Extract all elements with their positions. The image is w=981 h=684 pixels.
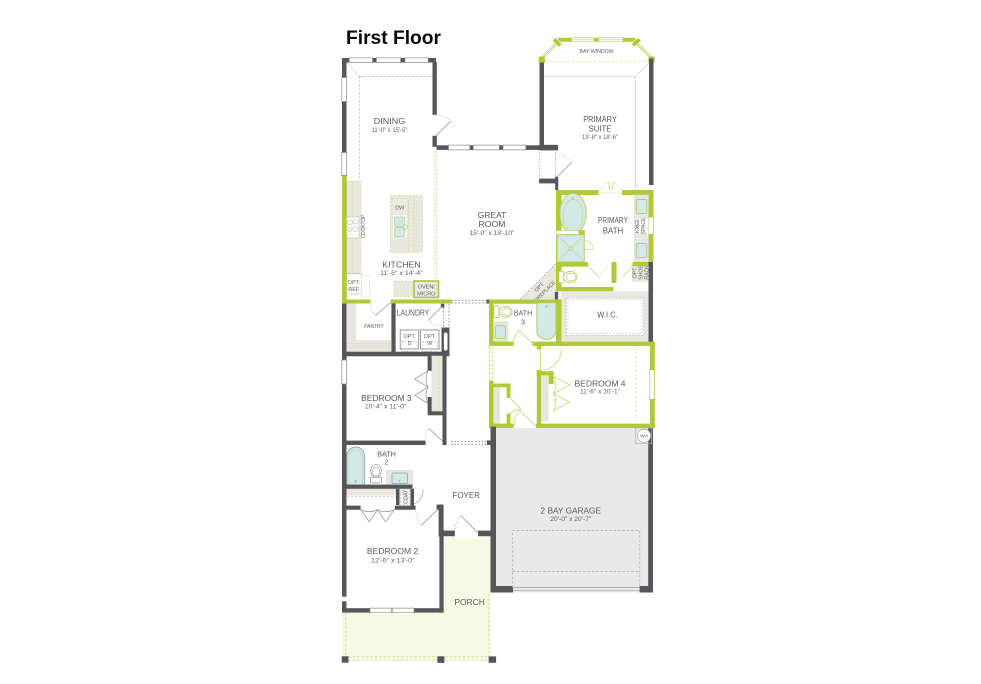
svg-text:W.I.C.: W.I.C. bbox=[597, 311, 618, 320]
svg-text:BAY WINDOW: BAY WINDOW bbox=[580, 49, 615, 55]
svg-text:PORCH: PORCH bbox=[454, 598, 484, 607]
svg-text:15'-0" x 18'-10": 15'-0" x 18'-10" bbox=[470, 230, 515, 237]
svg-text:PRIMARY: PRIMARY bbox=[583, 115, 617, 124]
svg-text:REF: REF bbox=[348, 287, 360, 293]
svg-text:20'-0" x 20'-7": 20'-0" x 20'-7" bbox=[550, 516, 591, 523]
svg-text:First Floor: First Floor bbox=[346, 27, 441, 49]
svg-text:RACK: RACK bbox=[644, 265, 650, 280]
svg-text:BATH: BATH bbox=[514, 309, 533, 318]
svg-text:11'-0" x 15'-5": 11'-0" x 15'-5" bbox=[372, 127, 408, 134]
svg-text:PANTRY: PANTRY bbox=[364, 324, 384, 330]
svg-text:LAUNDRY: LAUNDRY bbox=[397, 308, 430, 317]
svg-text:D: D bbox=[408, 341, 412, 347]
svg-text:OPT.: OPT. bbox=[424, 334, 437, 340]
svg-text:DINING: DINING bbox=[374, 117, 406, 126]
svg-text:OPT.: OPT. bbox=[403, 334, 416, 340]
svg-text:BEDROOM 3: BEDROOM 3 bbox=[361, 394, 412, 403]
svg-text:3: 3 bbox=[521, 318, 525, 327]
svg-text:SPACE: SPACE bbox=[641, 217, 647, 234]
svg-text:KITCHEN: KITCHEN bbox=[382, 261, 421, 270]
svg-text:BEDROOM 4: BEDROOM 4 bbox=[575, 379, 627, 388]
svg-text:W: W bbox=[427, 341, 433, 347]
svg-text:BEDROOM 2: BEDROOM 2 bbox=[367, 547, 418, 556]
svg-text:11'-6" x 10'-1": 11'-6" x 10'-1" bbox=[580, 389, 620, 396]
svg-text:13'-8" x 18'-6": 13'-8" x 18'-6" bbox=[582, 134, 618, 141]
svg-text:10'-4" x 11'-0": 10'-4" x 11'-0" bbox=[365, 404, 406, 411]
svg-text:11'-5" x 14'-4": 11'-5" x 14'-4" bbox=[380, 270, 423, 277]
svg-text:ROOM: ROOM bbox=[479, 220, 506, 229]
svg-text:OPT.: OPT. bbox=[348, 280, 361, 286]
svg-text:FOYER: FOYER bbox=[452, 491, 480, 500]
svg-text:MICRO: MICRO bbox=[417, 291, 436, 297]
svg-text:COAT: COAT bbox=[403, 489, 409, 504]
svg-text:WH: WH bbox=[640, 434, 648, 439]
svg-text:PRIMARY: PRIMARY bbox=[598, 216, 629, 225]
svg-text:SUITE: SUITE bbox=[589, 125, 612, 134]
svg-text:COOKTOP: COOKTOP bbox=[361, 214, 367, 238]
svg-text:BATH: BATH bbox=[603, 226, 624, 235]
svg-text:2: 2 bbox=[385, 458, 389, 467]
svg-text:DW: DW bbox=[395, 206, 405, 212]
svg-text:2 BAY GARAGE: 2 BAY GARAGE bbox=[541, 506, 602, 515]
svg-text:GREAT: GREAT bbox=[478, 211, 507, 220]
svg-text:12'-0" x 13'-0": 12'-0" x 13'-0" bbox=[371, 558, 415, 565]
svg-text:OVEN/: OVEN/ bbox=[418, 285, 436, 291]
